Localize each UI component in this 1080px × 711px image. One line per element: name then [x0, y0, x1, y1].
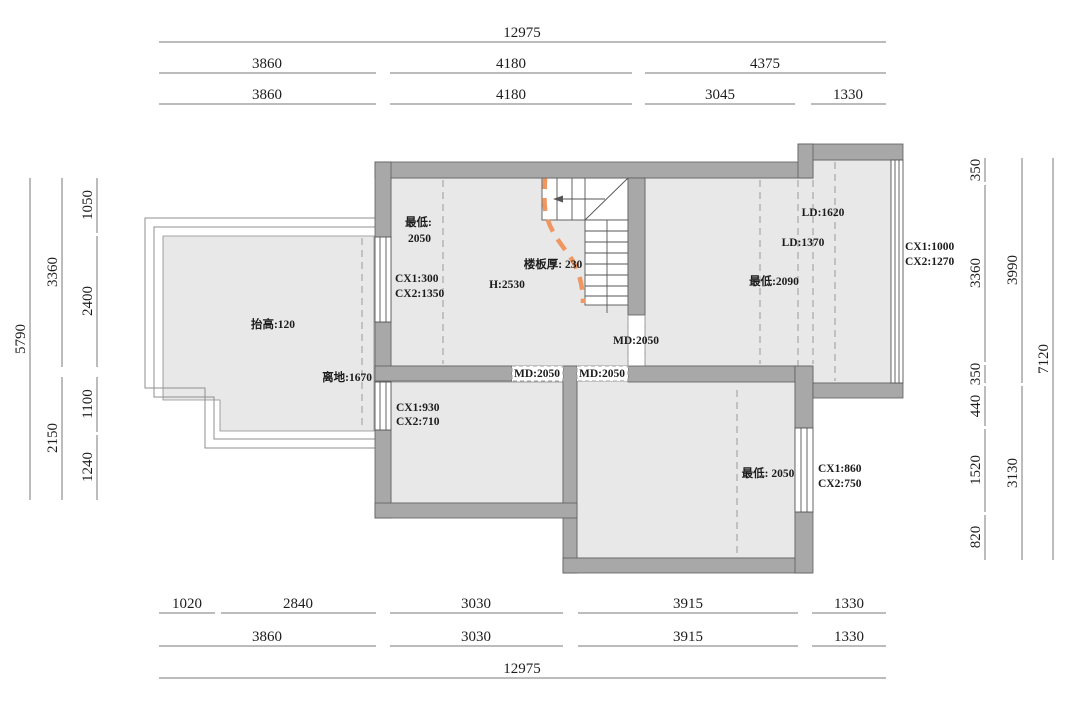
- floor-areas: [163, 160, 891, 558]
- dim-bot1-3915: 3915: [673, 596, 703, 612]
- label-cx-topleft-line2: CX2:1350: [395, 288, 444, 300]
- dim-right-3130: 3130: [1005, 458, 1021, 488]
- window-terrace-door: [375, 237, 391, 322]
- label-cx-bottomleft-line1: CX1:930: [396, 402, 440, 414]
- window-bottom-left-room: [375, 382, 391, 430]
- label-min-height-topleft-line2: 2050: [408, 233, 431, 245]
- label-min-height-topleft-line1: 最低:: [405, 215, 432, 229]
- window-bottom-right-room: [795, 428, 813, 512]
- label-cx-right-line1: CX1:1000: [905, 241, 954, 253]
- dim-left-2400: 2400: [80, 286, 96, 316]
- label-clear-height: H:2530: [489, 279, 525, 291]
- wall-bottom-right-room-bottom: [563, 558, 812, 573]
- wall-top-upper: [798, 144, 903, 160]
- label-cx-bottomright-line2: CX2:750: [818, 478, 862, 490]
- dim-left-1050: 1050: [80, 190, 96, 220]
- wall-right-strip-bottom: [813, 383, 903, 398]
- dim-bot1-2840: 2840: [283, 596, 313, 612]
- dim-right-3990: 3990: [1005, 255, 1021, 285]
- wall-stair-side: [628, 178, 645, 315]
- floor-plan-canvas: 最低: 2050 CX1:300 CX2:1350 抬高:120 离地:1670…: [0, 0, 1080, 711]
- label-ld-1370: LD:1370: [782, 237, 825, 249]
- label-min-height-bottomright: 最低: 2050: [742, 466, 795, 480]
- dim-bot1-3030: 3030: [461, 596, 491, 612]
- wall-top-main: [375, 162, 813, 178]
- dim-bot2-3860: 3860: [252, 629, 282, 645]
- wall-step-connector: [798, 144, 813, 178]
- label-cx-bottomleft-line2: CX2:710: [396, 416, 440, 428]
- dim-right-7120: 7120: [1036, 344, 1052, 374]
- terrace-floor: [163, 236, 374, 431]
- stair-lower-run: [585, 220, 628, 305]
- dim-top3-1330: 1330: [833, 87, 863, 103]
- label-cx-right-line2: CX2:1270: [905, 256, 954, 268]
- label-terrace-raised: 抬高:120: [251, 317, 295, 331]
- label-ld-1620: LD:1620: [802, 207, 845, 219]
- wall-bottom-right-room-right-upper: [795, 366, 813, 428]
- dim-top2-3860: 3860: [252, 56, 282, 72]
- wall-middle-left: [375, 366, 512, 381]
- window-right-wall: [891, 160, 903, 383]
- dim-top3-3860: 3860: [252, 87, 282, 103]
- label-cx-bottomright-line1: CX1:860: [818, 463, 862, 475]
- label-door-1: MD:2050: [514, 368, 560, 380]
- dim-top2-4180: 4180: [496, 56, 526, 72]
- label-slab-thickness: 楼板厚: 230: [524, 257, 583, 271]
- dim-top2-4375: 4375: [750, 56, 780, 72]
- dim-bot2-3030: 3030: [461, 629, 491, 645]
- dim-bot2-1330: 1330: [834, 629, 864, 645]
- dim-right-1520: 1520: [968, 455, 984, 485]
- dimensions-bottom: 1020 2840 3030 3915 1330 3860 3030 3915 …: [159, 596, 886, 678]
- dim-right-350a: 350: [968, 159, 984, 182]
- dim-left-1100: 1100: [80, 389, 96, 418]
- dim-top-12975: 12975: [503, 25, 541, 41]
- wall-middle-right: [628, 366, 795, 382]
- dim-left-3360: 3360: [45, 257, 61, 287]
- dim-right-440: 440: [968, 395, 984, 418]
- label-above-floor: 离地:1670: [322, 370, 372, 384]
- room-bottom-left-floor: [391, 382, 563, 503]
- dim-top3-3045: 3045: [705, 87, 735, 103]
- wall-bottom-right-room-right-lower: [795, 512, 813, 573]
- label-cx-topleft-line1: CX1:300: [395, 273, 439, 285]
- dim-bot1-1020: 1020: [172, 596, 202, 612]
- dimensions-top: 12975 3860 4180 4375 3860 4180 3045 1330: [159, 25, 886, 104]
- room-right-floor: [645, 160, 891, 383]
- dimensions-right: 350 3360 350 440 1520 820 3990 3130 7120: [968, 158, 1053, 560]
- dim-left-2150: 2150: [45, 423, 61, 453]
- dim-left-1240: 1240: [80, 452, 96, 482]
- dim-bot3-12975: 12975: [503, 661, 541, 677]
- label-min-height-right: 最低:2090: [749, 274, 799, 288]
- dim-top3-4180: 4180: [496, 87, 526, 103]
- wall-between-bottom-rooms: [563, 366, 577, 573]
- dim-right-3360: 3360: [968, 258, 984, 288]
- label-door-2: MD:2050: [579, 368, 625, 380]
- wall-left-upper: [375, 162, 391, 238]
- dim-bot1-1330: 1330: [834, 596, 864, 612]
- label-door-stair: MD:2050: [613, 335, 659, 347]
- dim-bot2-3915: 3915: [673, 629, 703, 645]
- wall-bottom-left-room-bottom: [375, 503, 577, 518]
- dimensions-left: 5790 3360 2150 1050 2400 1100 1240: [13, 178, 97, 500]
- dim-left-5790: 5790: [13, 324, 29, 354]
- floor-plan-drawing: 最低: 2050 CX1:300 CX2:1350 抬高:120 离地:1670…: [0, 0, 1080, 711]
- dim-right-350b: 350: [968, 363, 984, 386]
- dim-right-820: 820: [968, 526, 984, 549]
